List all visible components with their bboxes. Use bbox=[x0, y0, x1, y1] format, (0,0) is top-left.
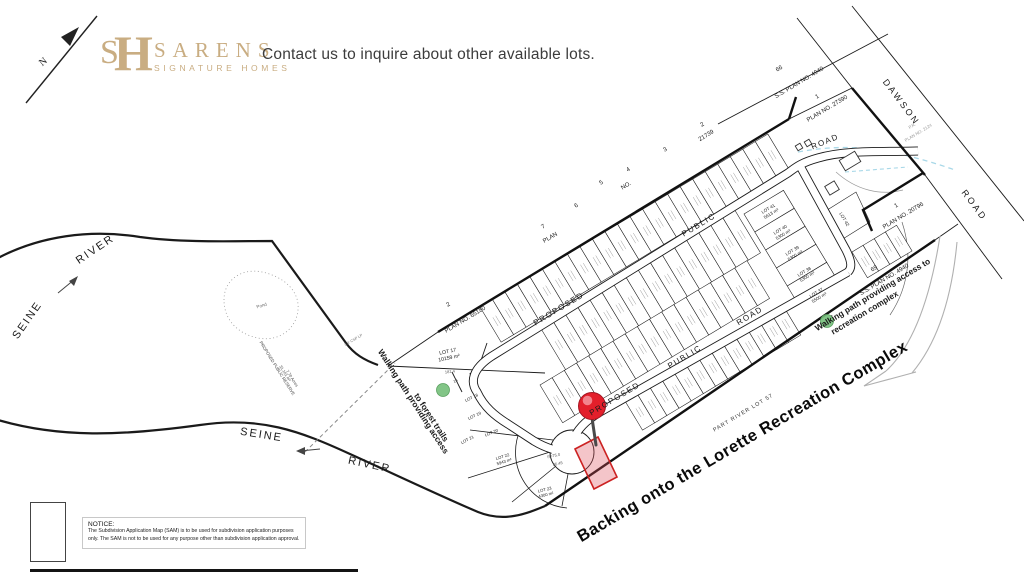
label-rivers-river-lower: RIVER bbox=[347, 455, 392, 476]
label-plans-ss4940-top-num: 66 bbox=[775, 65, 784, 74]
label-plans-p21739-plan: PLAN bbox=[542, 232, 559, 245]
monogram-h: H bbox=[114, 24, 153, 82]
building-footprint bbox=[825, 181, 840, 195]
label-plans-p27390: PLAN NO. 27390 bbox=[806, 94, 849, 123]
label-plans-p65180-num: 2 bbox=[446, 301, 453, 308]
label-plans-p20796-num: 1 bbox=[894, 202, 901, 209]
label-rivers-seine-upper: SEINE bbox=[10, 299, 45, 341]
label-map-pond: Pond bbox=[256, 302, 268, 310]
label-dims-d181: 181.4 bbox=[445, 368, 456, 374]
subdivision-map: SEINERIVERSEINERIVERPondPROPOSED PUBLIC … bbox=[0, 0, 1024, 575]
label-lot20-name: LOT 20 bbox=[484, 427, 499, 437]
label-reserve-l1: PROPOSED PUBLIC RESERVE bbox=[259, 340, 297, 396]
label-p21739-lots-2: 5 bbox=[599, 179, 606, 186]
label-plans-p27390-num: 1 bbox=[815, 93, 822, 100]
walking-path-dashed bbox=[305, 363, 395, 452]
label-lot21-name: LOT 21 bbox=[460, 434, 475, 445]
label-p21739-lots-0: 7 bbox=[541, 223, 548, 230]
contact-text: Contact us to inquire about other availa… bbox=[262, 46, 595, 64]
label-plans-p21739-no: NO. bbox=[620, 181, 633, 192]
notice-box: NOTICE: The Subdivision Application Map … bbox=[82, 517, 306, 549]
label-header-north-label: N bbox=[37, 56, 50, 69]
label-dawson-0: DAWSON bbox=[881, 77, 922, 127]
label-plans-p20796: PLAN NO. 20796 bbox=[882, 201, 925, 230]
label-p21739-lots-3: 4 bbox=[626, 166, 633, 173]
building-footprint bbox=[795, 143, 803, 151]
label-lot19-name: LOT 19 bbox=[467, 410, 482, 421]
legend-box bbox=[30, 502, 66, 562]
path-access-marker bbox=[437, 384, 450, 397]
label-lot23-name: LOT 234300 m² bbox=[537, 485, 555, 499]
label-lot17-name: LOT 1710159 m² bbox=[436, 347, 460, 364]
label-p21739-lots-4: 3 bbox=[663, 146, 670, 153]
label-plans-p65180: PLAN NO. 65180 bbox=[444, 305, 487, 334]
logo-tagline: SIGNATURE HOMES bbox=[154, 64, 291, 73]
label-lot22-name: LOT 225943 m² bbox=[494, 452, 512, 467]
label-dims-lot16: 16 bbox=[452, 377, 459, 384]
sarens-monogram-icon: H S bbox=[100, 30, 146, 82]
monogram-s: S bbox=[100, 34, 119, 72]
label-plans-p21739-num: 21739 bbox=[698, 129, 716, 143]
label-rivers-river-upper: RIVER bbox=[74, 232, 117, 266]
notice-title: NOTICE: bbox=[88, 521, 300, 528]
label-p21739-lots-5: 2 bbox=[700, 121, 707, 128]
notice-line-2: only. The SAM is not to be used for any … bbox=[88, 536, 300, 544]
subdivision-application-map-page: SEINERIVERSEINERIVERPondPROPOSED PUBLIC … bbox=[0, 0, 1024, 575]
label-dawson-1: ROAD bbox=[960, 188, 990, 223]
label-p21739-lots-1: 6 bbox=[574, 202, 581, 209]
notice-line-1: The Subdivision Application Map (SAM) is… bbox=[88, 528, 300, 536]
label-dims-csp: 3.4' CSP LP bbox=[344, 333, 364, 347]
label-rivers-seine-lower: SEINE bbox=[239, 426, 283, 445]
map-sheet-edge bbox=[30, 569, 358, 572]
